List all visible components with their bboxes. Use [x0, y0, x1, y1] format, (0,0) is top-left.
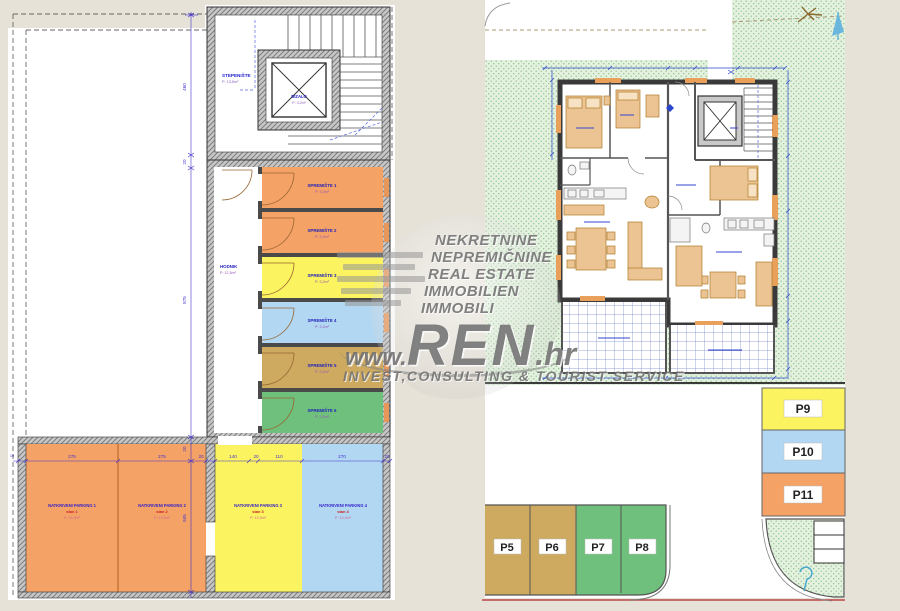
dim-h-3: 20 — [198, 454, 204, 459]
parking-p9-label: P9 — [796, 402, 811, 416]
parking-p5-label: P5 — [500, 542, 513, 554]
left-floor-plan: STEPENIŠTE P: 13,5m² DIZALO P: 3,2m² — [0, 0, 400, 611]
storage-room-2-label: SPREMIŠTE 2 — [307, 228, 337, 233]
storage-room-6-label: SPREMIŠTE 6 — [307, 408, 337, 413]
parking-p8-label: P8 — [635, 542, 648, 554]
parking-4-area: P: 13,3m² — [335, 516, 352, 520]
floor-plan-sheet: { "watermark": { "lines": ["NEKRETNINE",… — [0, 0, 900, 611]
apartment-building — [556, 78, 778, 326]
elevator-core — [698, 96, 742, 146]
storage-room-5-label: SPREMIŠTE 5 — [307, 363, 337, 368]
storage-room-4-area: P: 3,2m² — [315, 325, 330, 329]
dim-h-6: 110 — [275, 454, 283, 459]
dim-left-10: 10 — [10, 454, 14, 458]
storage-room-1-label: SPREMIŠTE 1 — [307, 183, 337, 188]
elevator-label: DIZALO — [291, 94, 307, 99]
parking-2-area: P: 13,3m² — [154, 516, 171, 520]
dim-460: 460 — [182, 83, 187, 91]
corridor-door-opening — [218, 436, 252, 445]
elevator-shaft — [258, 50, 340, 130]
parking-p6-label: P6 — [545, 542, 558, 554]
dim-20b: 20 — [182, 446, 187, 452]
parking-4-unit: stan 4 — [337, 509, 349, 514]
storage-room-3-label: SPREMIŠTE 3 — [307, 273, 337, 278]
staircase-area: P: 13,5m² — [222, 80, 239, 84]
covered-parking-block: NATKRIVENI PARKING 1 stan 1 P: 13,3m² NA… — [18, 436, 390, 598]
storage-room-6-area: P: 3,2m² — [315, 415, 330, 419]
parking-p10-label: P10 — [792, 445, 814, 459]
dim-h-1: 275 — [68, 454, 76, 459]
parking-1-unit: stan 1 — [66, 509, 78, 514]
garden-steps — [814, 521, 844, 563]
parking-1-label: NATKRIVENI PARKING 1 — [48, 503, 97, 508]
storage-room-2-area: P: 3,2m² — [315, 235, 330, 239]
parking-p7-label: P7 — [591, 542, 604, 554]
dim-h-7: 270 — [338, 454, 346, 459]
dim-h-8: 25 — [384, 454, 390, 459]
parking-2-unit: stan 2 — [156, 509, 168, 514]
driveway-strip — [708, 0, 732, 82]
staircase-label: STEPENIŠTE — [222, 71, 251, 78]
parking-1-area: P: 13,3m² — [64, 516, 81, 520]
parking-2-label: NATKRIVENI PARKING 2 — [138, 503, 187, 508]
parking-3-area: P: 13,3m² — [250, 516, 267, 520]
stairwell-block: STEPENIŠTE P: 13,5m² DIZALO P: 3,2m² — [207, 7, 390, 160]
parking-p11-label: P11 — [793, 488, 814, 502]
parking-4-label: NATKRIVENI PARKING 4 — [319, 503, 368, 508]
storage-block: SPREMIŠTE 1 P: 3,2m² SPREMIŠTE 2 P: 3,2m… — [207, 160, 390, 437]
parking-3-label: NATKRIVENI PARKING 3 — [234, 503, 283, 508]
parking-column: P9 P10 P11 — [762, 388, 845, 516]
dim-h-4: 140 — [229, 454, 237, 459]
terrace-right — [670, 325, 774, 373]
dim-h-5: 20 — [253, 454, 259, 459]
parking-3-unit: stan 3 — [252, 509, 264, 514]
elevator-area: P: 3,2m² — [292, 101, 306, 105]
dim-505: 505 — [182, 514, 187, 522]
hallway-label: HODNIK — [220, 264, 238, 269]
parking-row: P5 P6 P7 P8 — [485, 505, 670, 600]
storage-room-4-label: SPREMIŠTE 4 — [307, 318, 337, 323]
dim-875: 875 — [182, 296, 187, 304]
dim-20a: 20 — [182, 159, 187, 165]
storage-room-5-area: P: 3,2m² — [315, 370, 330, 374]
right-site-plan: P9 P10 P11 P5 P6 P7 P8 — [480, 0, 900, 611]
dim-h-2: 275 — [158, 454, 166, 459]
storage-room-1-area: P: 3,2m² — [315, 190, 330, 194]
storage-room-3-area: P: 3,2m² — [315, 280, 330, 284]
hallway-area: P: 12,5m² — [220, 271, 237, 275]
